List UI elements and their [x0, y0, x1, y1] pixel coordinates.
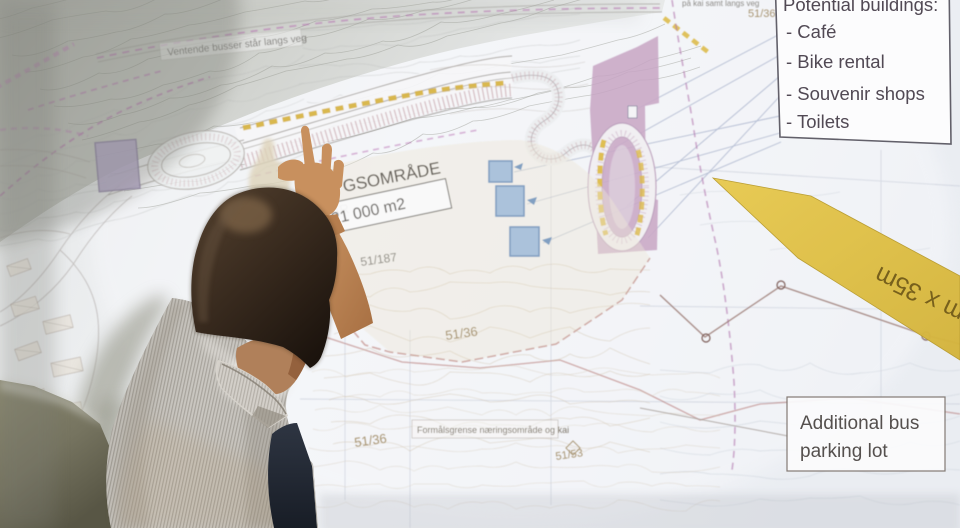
svg-text:- Toilets: - Toilets [786, 111, 849, 132]
svg-text:- Café: - Café [786, 21, 836, 42]
svg-text:parking lot: parking lot [800, 441, 888, 462]
svg-text:Formålsgrense næringsområde og: Formålsgrense næringsområde og kai [417, 425, 569, 435]
svg-text:Additional bus: Additional bus [800, 413, 919, 434]
svg-text:Potential buildings:: Potential buildings: [783, 0, 938, 15]
svg-text:på kai samt langs veg: på kai samt langs veg [682, 0, 759, 8]
svg-text:- Bike rental: - Bike rental [786, 51, 885, 72]
svg-text:- Souvenir shops: - Souvenir shops [786, 83, 925, 104]
svg-text:51/36: 51/36 [748, 8, 776, 20]
